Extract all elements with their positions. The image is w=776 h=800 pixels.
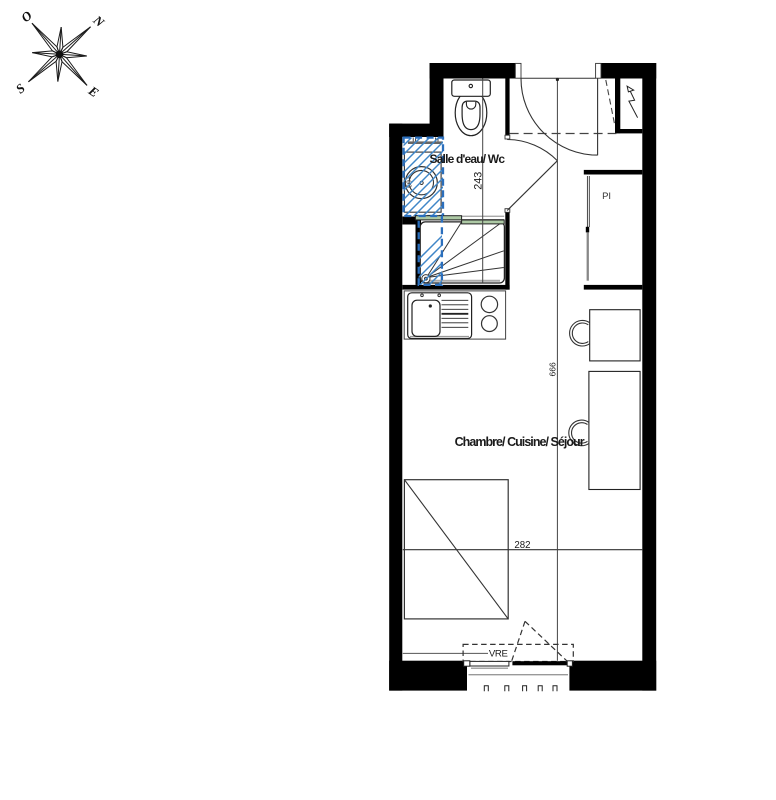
- svg-text:S: S: [13, 80, 28, 96]
- svg-text:N: N: [90, 12, 108, 31]
- svg-text:E: E: [85, 82, 102, 100]
- svg-text:Chambre/ Cuisine/ Séjour: Chambre/ Cuisine/ Séjour: [455, 435, 585, 449]
- svg-text:Salle d'eau/ Wc: Salle d'eau/ Wc: [430, 152, 506, 166]
- svg-text:243: 243: [472, 172, 484, 190]
- svg-text:O: O: [18, 7, 35, 25]
- svg-text:666: 666: [548, 362, 558, 376]
- svg-text:282: 282: [514, 540, 530, 551]
- svg-text:VRE: VRE: [489, 648, 508, 659]
- svg-text:PI: PI: [602, 191, 611, 202]
